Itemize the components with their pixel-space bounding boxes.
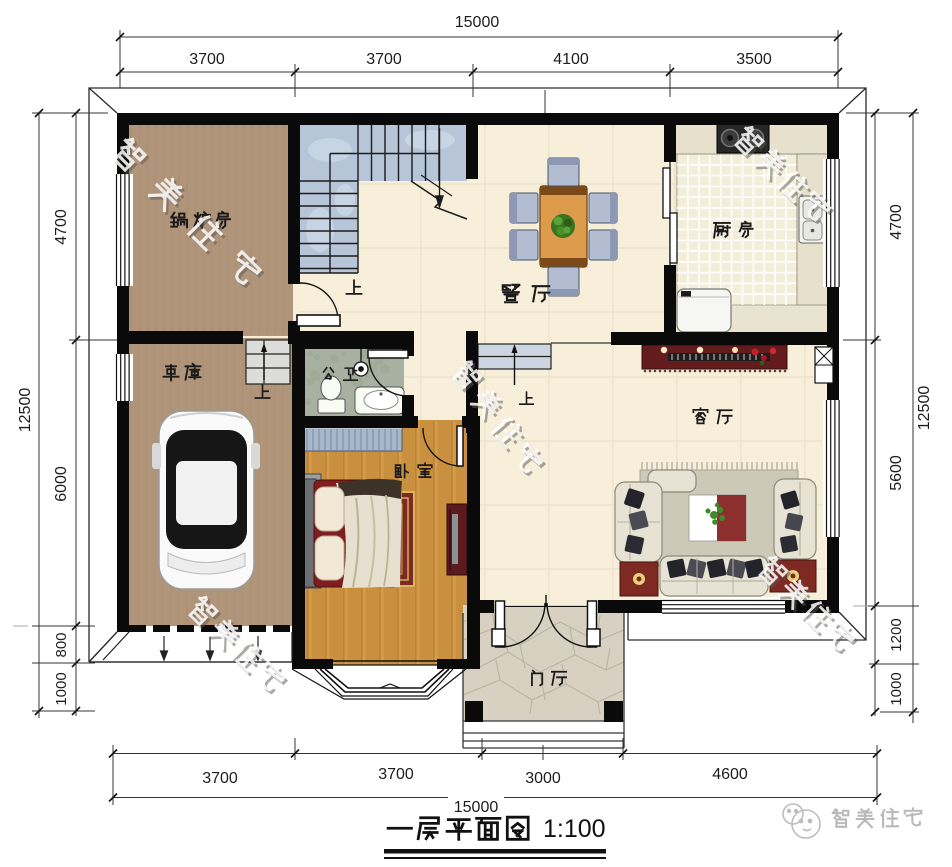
svg-text:15000: 15000 — [454, 799, 499, 816]
svg-text:3700: 3700 — [366, 51, 402, 68]
svg-text:1:100: 1:100 — [543, 815, 606, 843]
svg-text:4700: 4700 — [888, 204, 905, 240]
svg-text:5600: 5600 — [888, 455, 905, 491]
svg-text:4700: 4700 — [53, 209, 70, 245]
svg-text:1000: 1000 — [888, 672, 905, 705]
svg-text:15000: 15000 — [455, 14, 500, 31]
svg-text:12500: 12500 — [17, 388, 34, 433]
svg-text:800: 800 — [53, 632, 70, 657]
svg-text:1200: 1200 — [888, 618, 905, 651]
svg-text:4600: 4600 — [712, 766, 748, 783]
svg-text:4100: 4100 — [553, 51, 589, 68]
svg-text:3000: 3000 — [525, 770, 561, 787]
svg-text:1000: 1000 — [53, 672, 70, 705]
svg-text:3700: 3700 — [378, 766, 414, 783]
svg-text:3500: 3500 — [736, 51, 772, 68]
svg-text:3700: 3700 — [202, 770, 238, 787]
svg-text:3700: 3700 — [189, 51, 225, 68]
svg-text:12500: 12500 — [916, 386, 933, 431]
svg-text:6000: 6000 — [53, 466, 70, 502]
